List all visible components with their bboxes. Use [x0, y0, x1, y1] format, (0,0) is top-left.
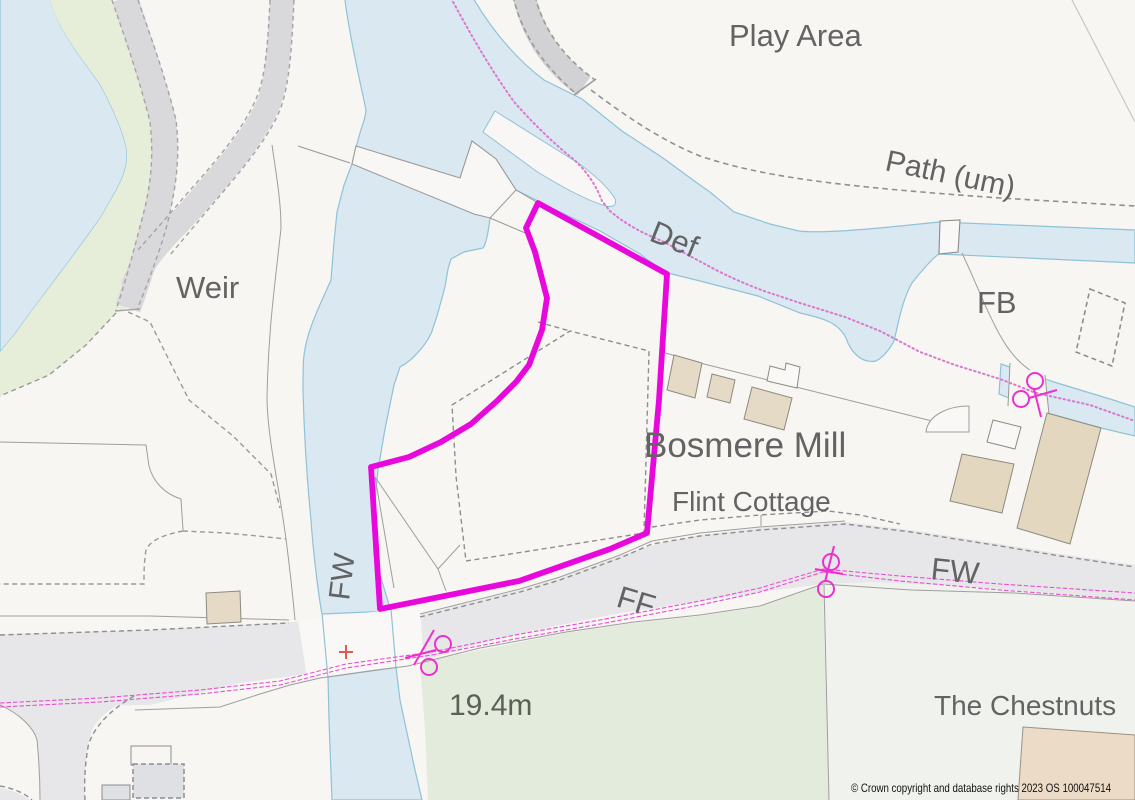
svg-text:Weir: Weir	[176, 270, 239, 305]
svg-text:FW: FW	[323, 551, 362, 602]
svg-text:FB: FB	[977, 285, 1017, 320]
svg-text:The Chestnuts: The Chestnuts	[934, 690, 1116, 721]
svg-text:19.4m: 19.4m	[449, 689, 532, 722]
svg-text:Bosmere Mill: Bosmere Mill	[644, 426, 846, 465]
svg-text:Play Area: Play Area	[729, 18, 862, 53]
svg-text:Flint Cottage: Flint Cottage	[672, 486, 831, 517]
svg-text:FW: FW	[929, 551, 981, 591]
svg-text:© Crown copyright and database: © Crown copyright and database rights 20…	[851, 782, 1111, 795]
